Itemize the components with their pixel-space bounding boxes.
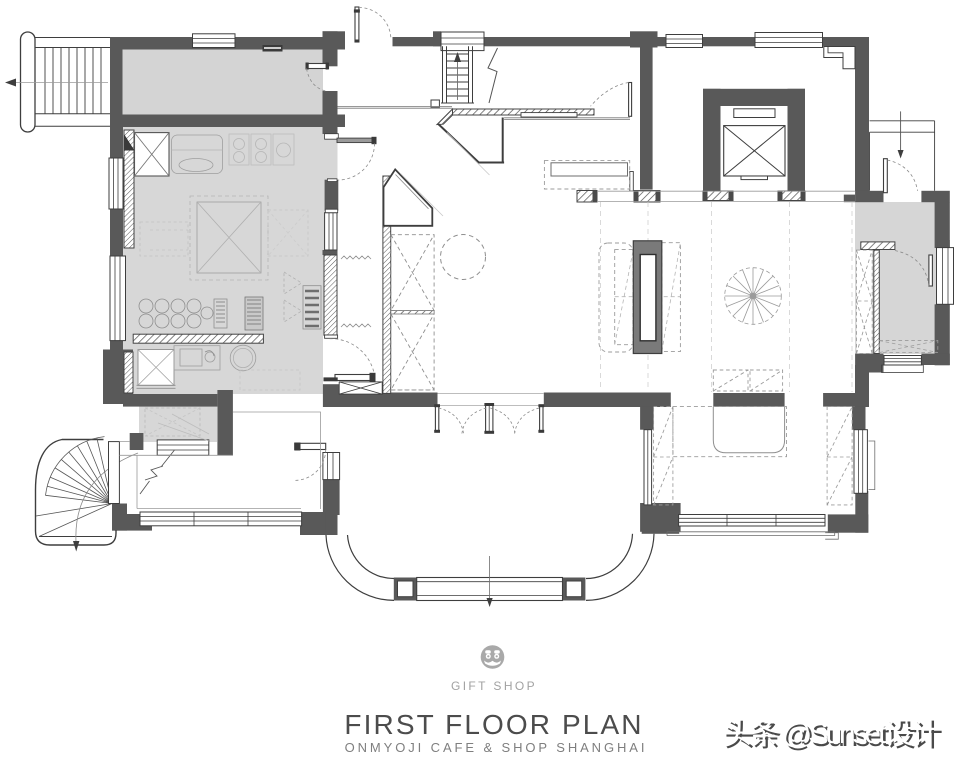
- svg-text:头条 @Sunset设计: 头条 @Sunset设计: [722, 717, 939, 750]
- svg-text:ONMYOJI CAFE & SHOP SHANGHAI: ONMYOJI CAFE & SHOP SHANGHAI: [345, 740, 648, 755]
- svg-text:GIFT SHOP: GIFT SHOP: [451, 679, 537, 693]
- svg-text:FIRST FLOOR PLAN: FIRST FLOOR PLAN: [344, 709, 643, 740]
